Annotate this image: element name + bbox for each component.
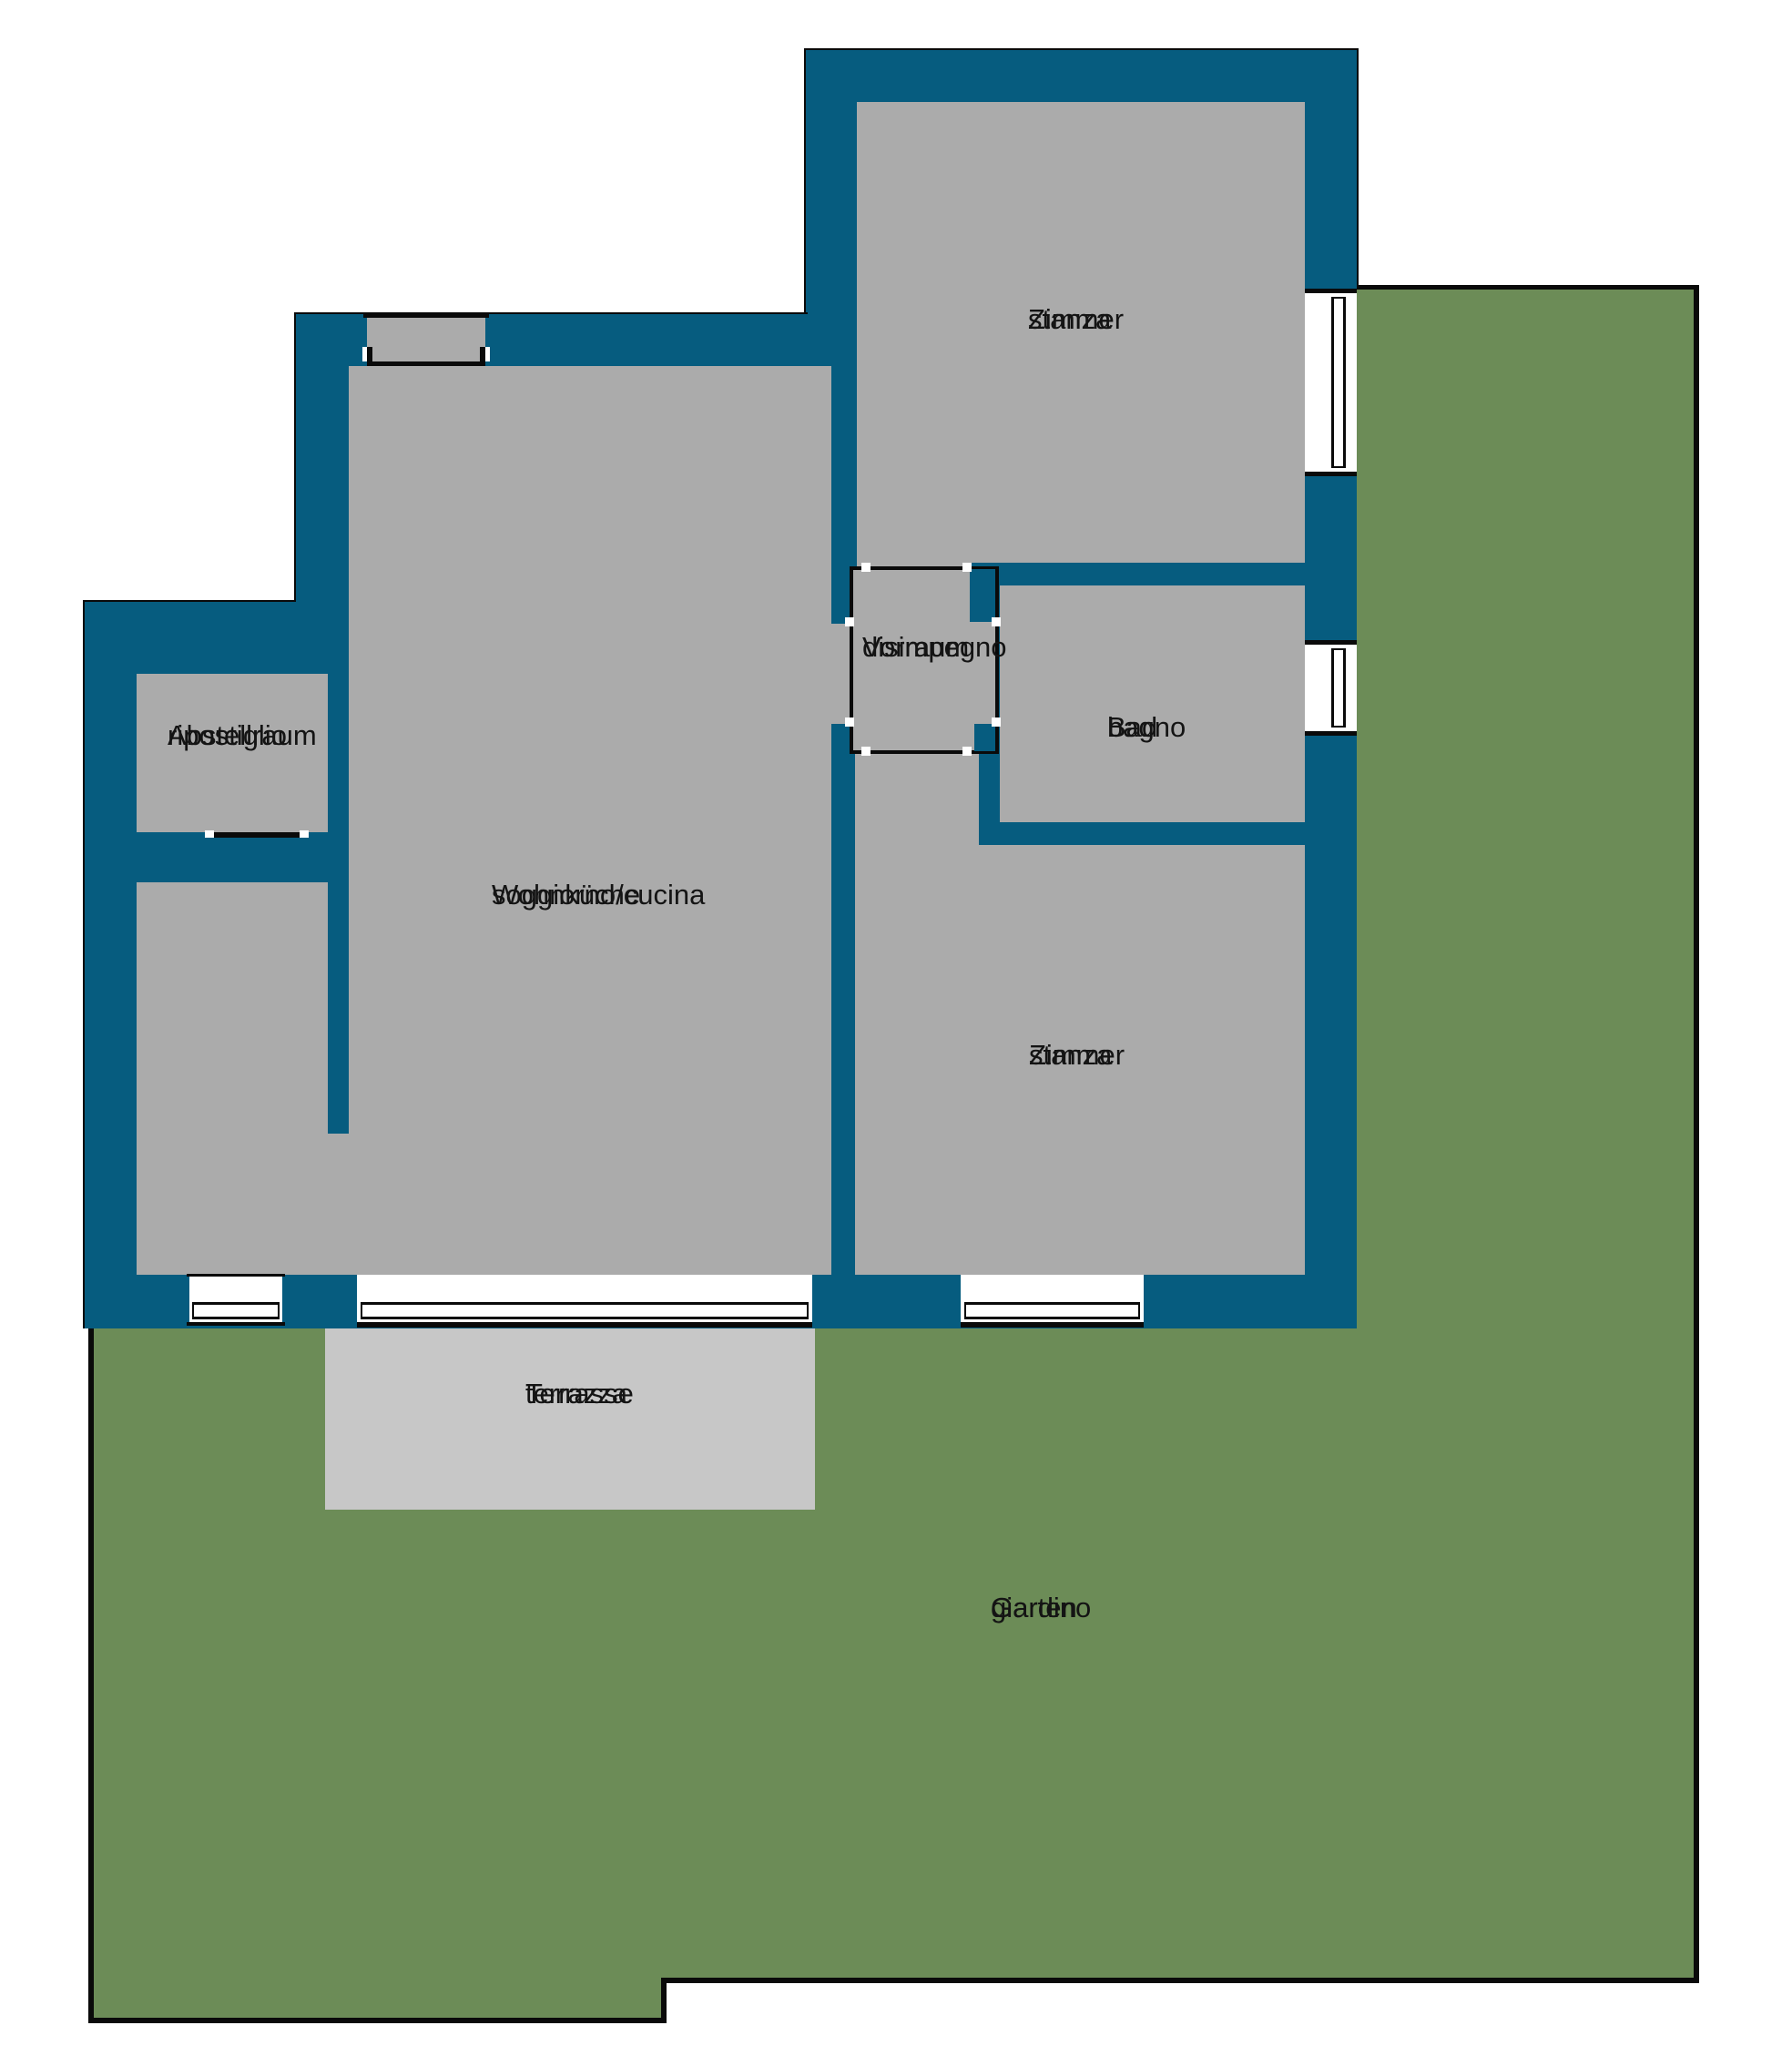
room-floor-zimmer-bottom-notch bbox=[855, 754, 979, 845]
garden-area-bottom-left bbox=[88, 1978, 667, 2023]
door-hinge-marker bbox=[861, 747, 871, 756]
window-bad-glass bbox=[1331, 648, 1346, 728]
garden-area-right bbox=[1357, 285, 1699, 1328]
window-zimmer-bottom-sill bbox=[961, 1322, 1144, 1328]
room-label-line: terrazza bbox=[525, 1375, 627, 1412]
window-frame-line bbox=[1305, 472, 1357, 476]
garden-outline-bottom-right bbox=[661, 1978, 1699, 1983]
entrance-door-threshold bbox=[367, 361, 485, 366]
entrance-door-jamb-gap-right bbox=[485, 347, 490, 361]
room-floor-wohnkueche bbox=[349, 366, 831, 1275]
door-hinge-marker bbox=[992, 617, 1001, 626]
outline-top-section-top bbox=[804, 48, 1359, 50]
room-label-line: ripostiglio bbox=[168, 717, 287, 754]
room-label-line: disimpegno bbox=[862, 628, 1007, 666]
door-hinge-marker bbox=[962, 747, 972, 756]
window-terrace-sill bbox=[357, 1322, 812, 1328]
room-label-line: bagno bbox=[1107, 708, 1186, 746]
room-label-line: stanza bbox=[1028, 300, 1111, 338]
abstellraum-door-tab-left bbox=[205, 838, 229, 882]
outline-left-wing-left bbox=[83, 602, 85, 1328]
wall-stub-vorraum-bottom-right bbox=[974, 724, 995, 751]
door-hinge-marker bbox=[992, 718, 1001, 727]
door-hinge-marker bbox=[845, 617, 854, 626]
entrance-niche-floor bbox=[367, 318, 485, 366]
window-terrace-glass bbox=[361, 1302, 809, 1319]
window-frame-line bbox=[187, 1322, 285, 1326]
window-frame-line bbox=[1305, 731, 1357, 736]
outline-mid-section-left bbox=[294, 314, 296, 602]
window-small-glass bbox=[192, 1302, 280, 1319]
window-zimmer-bottom-glass bbox=[964, 1302, 1140, 1319]
room-label-line: giardino bbox=[991, 1589, 1091, 1626]
outline-top-section-left bbox=[804, 50, 806, 314]
floor-plan: Zimmer stanza Vorraum disimpegno Bad bag… bbox=[0, 0, 1792, 2066]
door-hinge-marker bbox=[845, 718, 854, 727]
door-hinge-marker bbox=[962, 563, 972, 572]
room-label-line: stanza bbox=[1029, 1036, 1112, 1074]
room-label-line: soggiorno/cucina bbox=[492, 876, 705, 913]
outline-top-section-right bbox=[1357, 50, 1359, 285]
wall-stub-vorraum-top-right bbox=[970, 569, 995, 622]
abstellraum-door-tab-right bbox=[285, 838, 309, 882]
wall-stub-below-abstellraum bbox=[328, 832, 351, 1134]
room-floor-wohnkueche-gap bbox=[328, 1134, 349, 1275]
terrace-area bbox=[325, 1328, 815, 1510]
door-gap-wohnkueche-vorraum bbox=[831, 624, 850, 724]
door-hinge-marker bbox=[861, 563, 871, 572]
room-floor-bad bbox=[1000, 585, 1305, 822]
entrance-door-jamb-left bbox=[367, 347, 372, 361]
window-zimmer-top-glass bbox=[1331, 297, 1346, 468]
outline-left-wing-top bbox=[83, 600, 296, 602]
room-floor-wohnkueche-left-ext bbox=[137, 882, 328, 1275]
entrance-niche-top-line bbox=[363, 314, 489, 318]
